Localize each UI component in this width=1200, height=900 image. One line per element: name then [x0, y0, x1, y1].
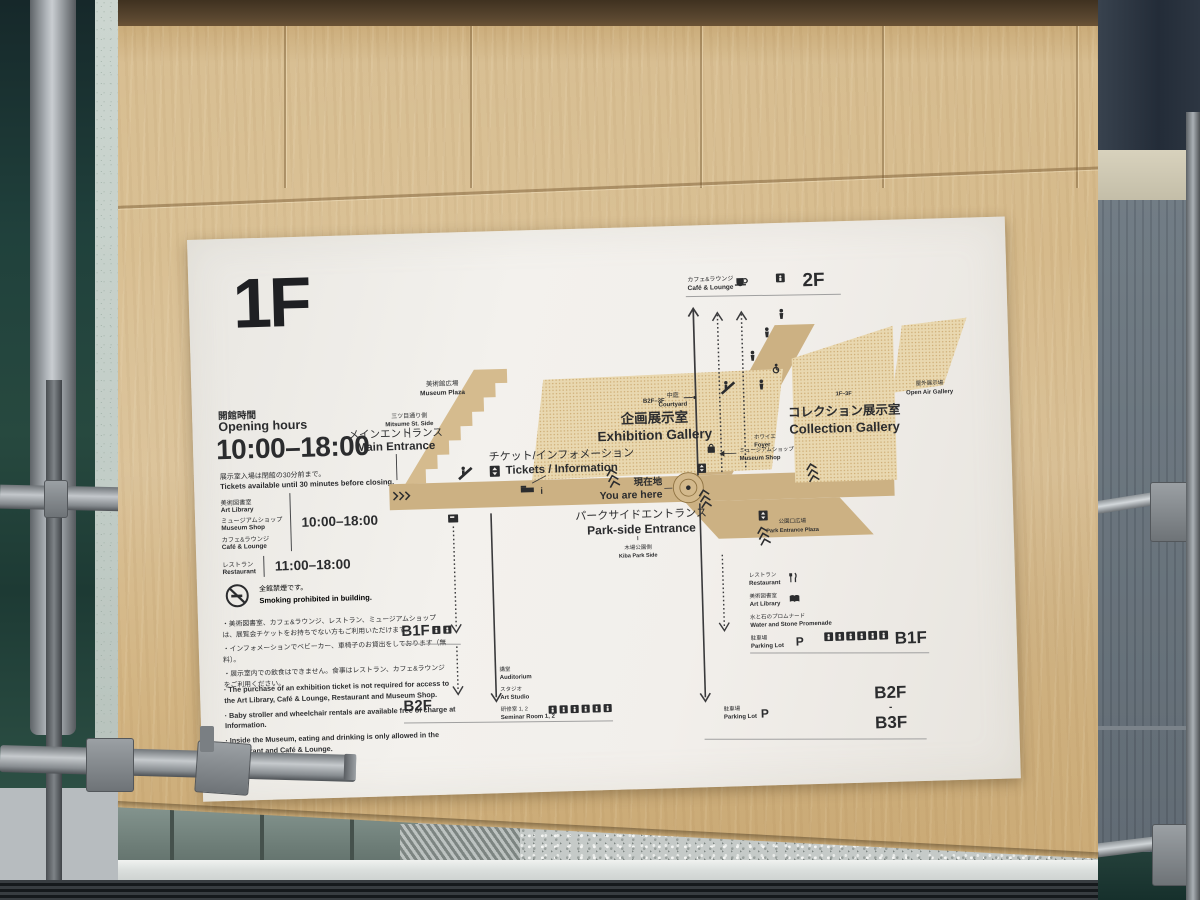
entrance-chevrons — [393, 492, 409, 500]
collection-gallery-area — [791, 326, 897, 483]
museum-shop-label-jp: ミュージアムショップ — [739, 446, 794, 455]
no-smoking-note: 全館禁煙です。 Smoking prohibited in building. — [224, 579, 372, 609]
board-top-band — [118, 0, 1098, 26]
tickets-info-label-en: Tickets / Information — [505, 462, 618, 477]
person-icon — [759, 379, 763, 389]
parkside-entrance-label-jp: パークサイドエントランス — [575, 506, 707, 523]
parkside-plaza-band — [685, 496, 874, 539]
parking-label-en: Parking Lot — [751, 643, 784, 650]
restaurant-label-en: Restaurant — [749, 580, 781, 587]
cafe-lounge-label-jp: カフェ&ラウンジ — [687, 274, 733, 283]
wood-seam — [1076, 26, 1078, 188]
smoking-area-icon — [879, 631, 888, 640]
art-library-icon — [790, 595, 800, 602]
vending-icon — [592, 704, 600, 712]
vending-icon — [868, 631, 877, 640]
note-jp: ・美術図書室、カフェ&ラウンジ、レストラン、ミュージアムショップは、展覧会チケッ… — [222, 614, 449, 642]
auditorium-label-en: Auditorium — [500, 674, 532, 681]
wheelchair-icon — [835, 632, 844, 641]
coin-locker-icon — [846, 632, 855, 641]
glass-mullion-right — [1096, 726, 1200, 730]
notes-english: · The purchase of an exhibition ticket i… — [224, 678, 462, 762]
parking-lower-label-en: Parking Lot — [724, 714, 757, 721]
rule-b1f-right — [750, 648, 929, 658]
open-air-gallery-label-en: Open Air Gallery — [906, 389, 954, 396]
wheelchair-icon — [560, 705, 568, 713]
courtyard-pointer — [684, 396, 697, 399]
scaffold-pole-left — [46, 380, 62, 900]
divider — [264, 556, 266, 577]
collection-gallery-label-jp: コレクション展示室 — [788, 402, 901, 420]
path-chevrons — [756, 526, 770, 545]
collection-floors-label: 1F–3F — [836, 391, 853, 397]
exhibition-gallery-label-jp: 企画展示室 — [619, 409, 688, 427]
wheelchair-icon — [773, 364, 779, 373]
clamp-lever — [200, 726, 214, 752]
museum-plaza-area — [387, 369, 511, 508]
floor-2f-label: 2F — [802, 270, 825, 292]
scaffold-pole-right — [1186, 112, 1200, 900]
note-jp: ・インフォメーションでベビーカー、車椅子のお貸出をしております（無料）。 — [223, 639, 450, 667]
wood-seam — [284, 26, 286, 188]
person-icon — [751, 351, 755, 361]
path-chevrons — [606, 469, 620, 488]
exhibition-gallery-area — [529, 369, 786, 480]
seminar-label-en: Seminar Room 1, 2 — [501, 714, 556, 722]
courtyard-label-en: Courtyard — [659, 402, 688, 409]
facility-hours-time: 11:00–18:00 — [275, 556, 351, 573]
facility-hours-time: 10:00–18:00 — [301, 512, 378, 529]
b2f-lower-label: B2F — [874, 682, 907, 702]
route-lines-down-left — [448, 513, 501, 702]
restroom-icon — [549, 706, 557, 714]
courtyard-label-jp: 中庭 — [667, 391, 679, 399]
art-library-label-en: Art Library — [750, 601, 781, 608]
floor-grate — [0, 880, 1098, 900]
smoking-area-icon — [603, 704, 611, 712]
smoking-note-en: Smoking prohibited in building. — [259, 593, 372, 605]
escalator-icon — [459, 466, 472, 479]
main-entrance-pointer — [396, 454, 397, 480]
rule-2f — [686, 292, 841, 298]
mitsume-label-jp: 三ツ目通り側 — [391, 411, 427, 420]
exhibition-floors-label: B2F–3F — [643, 398, 665, 405]
kiba-park-label-jp: 木場公園側 — [624, 543, 652, 552]
information-icon: i — [540, 486, 543, 496]
note-en: · Baby stroller and wheelchair rentals a… — [225, 704, 462, 732]
restaurant-label-jp: レストラン — [749, 571, 777, 579]
restroom-icon — [824, 632, 833, 641]
facility-label-en: Café & Lounge — [222, 542, 284, 551]
main-corridor — [389, 470, 895, 511]
pipe-clamp — [44, 480, 68, 518]
promenade-label-jp: 水と石のプロムナード — [750, 611, 805, 621]
ticket-machine-icon — [448, 514, 458, 522]
photo-scene: 1F 開館時間 Opening hours 10:00–18:00 展示室入場は… — [0, 0, 1200, 900]
divider — [290, 493, 293, 551]
route-lines-down-right — [695, 503, 732, 702]
museum-plaza-label-jp: 美術館広場 — [426, 378, 459, 388]
art-studio-label-jp: スタジオ — [500, 685, 522, 694]
parking-p-icon: P — [761, 706, 769, 720]
b2f-b3f-dash: - — [889, 702, 893, 713]
parkside-entrance-label-en: Park-side Entrance — [587, 520, 696, 537]
museum-shop-icon — [708, 444, 715, 453]
wood-seam — [700, 26, 702, 188]
restroom-icon — [776, 273, 785, 282]
wood-seam — [882, 26, 884, 188]
you-are-here-label-en: You are here — [600, 488, 663, 502]
window-sill-right — [1096, 150, 1200, 205]
park-entrance-plaza-label-jp: 公園口広場 — [778, 516, 806, 525]
kiba-park-label-en: Kiba Park Side — [619, 553, 658, 560]
cafe-icon — [735, 278, 748, 286]
tickets-pointer — [532, 476, 546, 483]
seminar-label-jp: 研修室 1, 2 — [501, 704, 528, 713]
facility-hours-row-2: レストラン Restaurant 11:00–18:00 — [222, 553, 351, 578]
foyer-label-jp: ホワイエ — [754, 433, 777, 441]
museum-shop-label-en: Museum Shop — [739, 455, 780, 462]
pipe-clamp — [86, 738, 134, 792]
facility-icons-b2f — [549, 704, 612, 714]
art-studio-label-en: Art Studio — [500, 694, 529, 701]
promenade-label-en: Water and Stone Promenade — [750, 621, 832, 629]
open-air-gallery-area — [891, 318, 969, 393]
facility-hours-row-1: 美術図書室 Art Library ミュージアムショップ Museum Shop… — [220, 491, 379, 553]
park-entrance-plaza-label-en: Park Entrance Plaza — [766, 527, 820, 535]
b1f-right-label: B1F — [894, 628, 927, 648]
mitsume-label-en: Mitsume St. Side — [385, 421, 434, 428]
path-chevrons — [806, 463, 820, 482]
auditorium-label-jp: 講堂 — [499, 665, 511, 673]
foyer-label-en: Foyer — [754, 442, 771, 448]
nursing-room-icon — [857, 631, 866, 640]
route-lines-up — [688, 307, 751, 476]
elevator-icon — [759, 510, 768, 520]
foyer-band — [688, 324, 819, 476]
opening-hours-time: 10:00–18:00 — [216, 430, 370, 466]
art-library-label-jp: 美術図書室 — [749, 591, 777, 600]
you-are-here-label-jp: 現在地 — [633, 475, 662, 488]
shop-pointer — [719, 450, 736, 456]
person-icon — [779, 309, 783, 319]
floor-label: 1F — [232, 267, 310, 339]
open-air-gallery-label-jp: 屋外展示場 — [916, 378, 944, 387]
parking-p-icon: P — [796, 634, 804, 648]
parking-lower-label-jp: 駐車場 — [724, 704, 741, 712]
museum-plaza-label-en: Museum Plaza — [420, 389, 465, 397]
restaurant-icon — [790, 573, 796, 582]
nursing-room-icon — [581, 705, 589, 713]
coin-locker-icon — [571, 705, 579, 713]
exhibition-gallery-label-en: Exhibition Gallery — [597, 426, 713, 444]
person-icon — [765, 327, 769, 337]
elevator-icon — [490, 466, 500, 477]
elevator-icon — [697, 463, 706, 473]
pipe-end-cap — [344, 754, 357, 780]
ticket-counter-icon — [521, 486, 534, 493]
parking-label-jp: 駐車場 — [751, 633, 768, 641]
facility-label-en: Museum Shop — [221, 523, 283, 532]
wood-seam-horizontal — [112, 166, 1111, 209]
cafe-lounge-label-en: Café & Lounge — [688, 284, 734, 292]
collection-gallery-label-en: Collection Gallery — [789, 419, 901, 437]
escalator-icon — [721, 381, 734, 394]
facility-label-en: Art Library — [221, 505, 283, 514]
smoking-note-jp: 全館禁煙です。 — [259, 581, 372, 594]
b3f-lower-label: B3F — [875, 712, 908, 732]
floor-map-sign: 1F 開館時間 Opening hours 10:00–18:00 展示室入場は… — [187, 216, 1021, 801]
you-are-here-target — [673, 472, 704, 503]
rule-b2b3 — [705, 733, 927, 745]
no-smoking-icon — [224, 582, 251, 609]
path-chevrons — [698, 489, 711, 508]
tickets-info-label-jp: チケット/インフォメーション — [488, 446, 634, 463]
facility-icons-b1f — [824, 631, 888, 642]
facility-label-en: Restaurant — [222, 568, 256, 576]
wood-seam — [470, 26, 472, 188]
facility-label-jp: レストラン — [222, 559, 256, 569]
